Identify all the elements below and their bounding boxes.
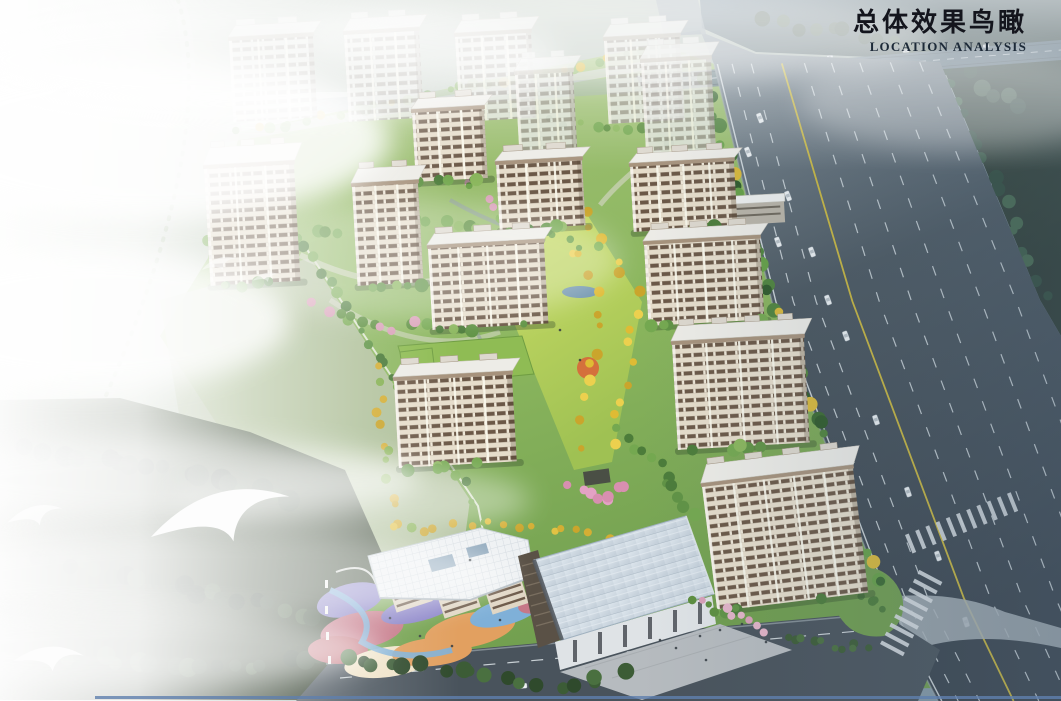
aerial-rendering: 总体效果鸟瞰 LOCATION ANALYSIS	[0, 0, 1061, 701]
page-title: 总体效果鸟瞰	[853, 8, 1027, 38]
page-subtitle: LOCATION ANALYSIS	[853, 39, 1027, 55]
bottom-edge-line	[95, 696, 1061, 699]
title-block: 总体效果鸟瞰 LOCATION ANALYSIS	[853, 8, 1027, 55]
rendering-canvas	[0, 0, 1061, 701]
